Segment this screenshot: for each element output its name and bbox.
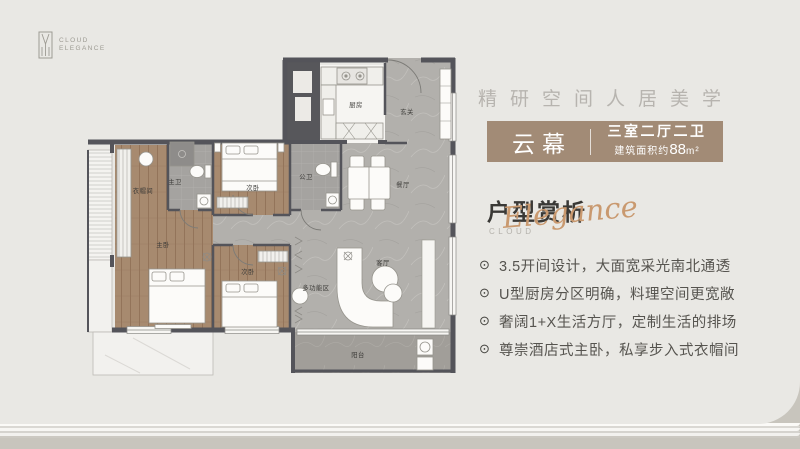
room-label: 主卧 [156,240,170,249]
feature-item: ⊙U型厨房分区明确，料理空间更宽敞 [479,279,739,307]
tagline: 精研空间人居美学 [478,84,734,111]
sheet-edge-stripe [0,436,800,438]
room-label: 多功能区 [302,283,329,292]
brand-name: CLOUD ELEGANCE [59,37,106,53]
poster: CLOUD ELEGANCE 精研空间人居美学 云幕 三室二厅二卫 建筑面积约8… [0,0,800,449]
feature-bullet-icon: ⊙ [479,313,499,329]
room-label: 阳台 [351,350,365,359]
room-label: 厨房 [349,100,363,109]
floor-plan-drawing: 厨房玄关衣帽间主卫次卧公卫餐厅主卧次卧多功能区客厅阳台 [85,55,457,405]
badge-specs: 三室二厅二卫 建筑面积约88m² [591,123,723,159]
room-label: 玄关 [400,107,414,116]
feature-text: 3.5开间设计，大面宽采光南北通透 [499,255,731,276]
room-label: 公卫 [299,173,313,181]
room-label: 主卫 [168,177,182,186]
feature-bullet-icon: ⊙ [479,341,499,357]
tower-icon [38,31,53,59]
area-value: 88 [669,141,686,158]
floor-plan: 厨房玄关衣帽间主卫次卧公卫餐厅主卧次卧多功能区客厅阳台 [85,55,457,405]
feature-text: 尊崇酒店式主卧，私享步入式衣帽间 [499,339,739,360]
feature-bullet-icon: ⊙ [479,285,499,301]
area-spec: 建筑面积约88m² [591,141,723,160]
content-sheet: CLOUD ELEGANCE 精研空间人居美学 云幕 三室二厅二卫 建筑面积约8… [0,0,800,424]
feature-item: ⊙3.5开间设计，大面宽采光南北通透 [479,251,739,279]
room-label: 餐厅 [396,180,410,189]
layout-spec: 三室二厅二卫 [591,123,723,141]
area-prefix: 建筑面积约 [614,146,669,157]
feature-text: U型厨房分区明确，料理空间更宽敞 [499,283,735,304]
room-label: 次卧 [246,183,260,192]
feature-text: 奢阔1+X生活方厅，定制生活的排场 [499,311,737,332]
project-badge: 云幕 三室二厅二卫 建筑面积约88m² [487,121,723,162]
room-label: 衣帽间 [133,186,153,195]
feature-list: ⊙3.5开间设计，大面宽采光南北通透⊙U型厨房分区明确，料理空间更宽敞⊙奢阔1+… [479,251,739,363]
room-label: 客厅 [376,258,390,267]
feature-item: ⊙奢阔1+X生活方厅，定制生活的排场 [479,307,739,335]
brand-line2: ELEGANCE [59,45,106,53]
room-label: 次卧 [241,267,255,276]
area-unit: m² [686,146,700,157]
feature-item: ⊙尊崇酒店式主卧，私享步入式衣帽间 [479,335,739,363]
project-name: 云幕 [487,125,590,159]
feature-bullet-icon: ⊙ [479,257,499,273]
brand-line1: CLOUD [59,37,106,45]
